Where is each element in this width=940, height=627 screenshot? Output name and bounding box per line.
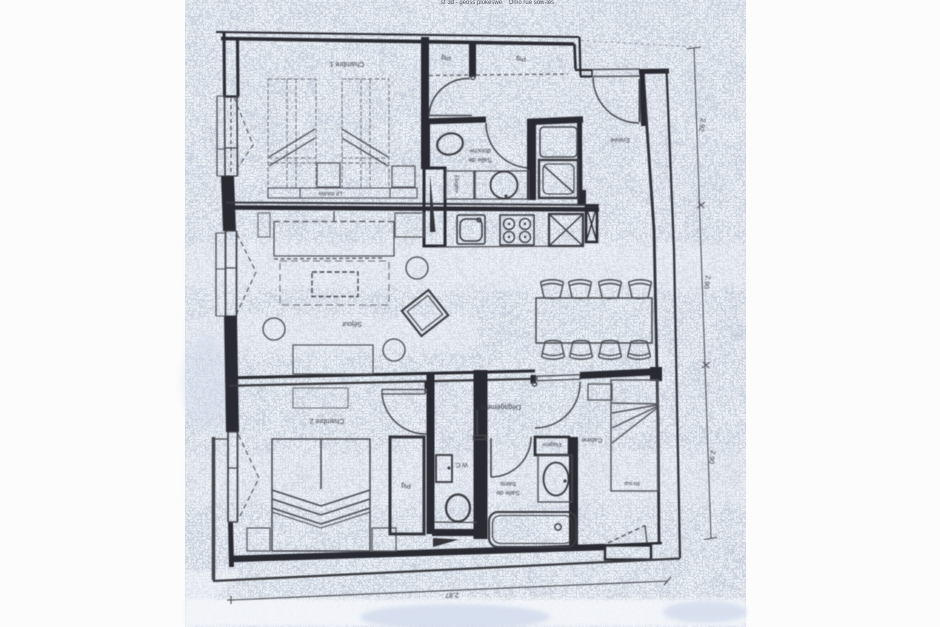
- svg-text:2.87: 2.87: [445, 591, 459, 598]
- svg-text:Etagère: Etagère: [453, 175, 459, 193]
- svg-text:st 3d - geoss plokeswe Omo: st 3d - geoss plokeswe Omo rue sow-les: [441, 0, 554, 6]
- svg-text:Séjour: Séjour: [341, 320, 362, 327]
- svg-text:Etagère: Etagère: [542, 441, 561, 447]
- svg-text:Dégagement: Dégagement: [481, 403, 521, 410]
- svg-text:Plg: Plg: [441, 54, 451, 61]
- svg-text:Entrée: Entrée: [610, 136, 630, 143]
- svg-text:bains: bains: [499, 480, 515, 487]
- svg-text:Salle de: Salle de: [468, 156, 492, 163]
- svg-text:Lit double: Lit double: [318, 190, 342, 196]
- svg-text:W.C.: W.C.: [454, 461, 468, 468]
- svg-text:lits sup: lits sup: [624, 480, 640, 486]
- svg-text:Chambre 1: Chambre 1: [330, 60, 365, 67]
- svg-text:Plg: Plg: [516, 55, 526, 62]
- svg-text:douche: douche: [469, 147, 491, 154]
- svg-text:Plg: Plg: [401, 482, 411, 489]
- svg-text:Cabine: Cabine: [581, 436, 602, 443]
- svg-text:Salle de: Salle de: [496, 489, 520, 496]
- svg-text:Chambre 2: Chambre 2: [310, 417, 345, 424]
